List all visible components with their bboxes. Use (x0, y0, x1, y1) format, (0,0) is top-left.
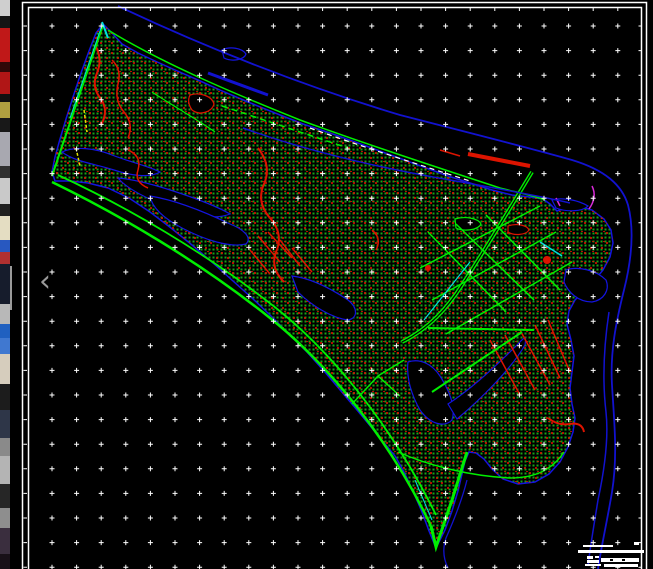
thumbnail[interactable] (0, 0, 10, 16)
title-block-bar (578, 550, 644, 553)
scrollbar-thumb[interactable] (10, 266, 12, 310)
red-blob (543, 256, 551, 264)
previous-image-arrow-icon[interactable]: ‹ (34, 268, 56, 298)
thumbnail[interactable] (0, 94, 10, 102)
thumbnail[interactable] (0, 166, 10, 178)
thumbnail[interactable] (0, 456, 10, 484)
thumbnail[interactable] (0, 410, 10, 438)
cad-drawing-canvas (0, 0, 653, 569)
thumbnail[interactable] (0, 72, 10, 94)
thumbnail[interactable] (0, 16, 10, 28)
thumbnail[interactable] (0, 324, 10, 338)
thumbnail[interactable] (0, 438, 10, 456)
thumbnail[interactable] (0, 484, 10, 508)
image-viewer: ‹ (0, 0, 653, 569)
thumbnail[interactable] (0, 240, 10, 252)
title-block-notch (610, 559, 613, 561)
thumbnail[interactable] (0, 118, 10, 132)
thumbnail[interactable] (0, 62, 10, 72)
thumbnail[interactable] (0, 528, 10, 554)
title-block-bar (585, 564, 601, 566)
thumbnail[interactable] (0, 28, 10, 62)
title-block-bar (634, 542, 639, 545)
red-contour (440, 150, 460, 156)
title-block-bar (587, 556, 593, 559)
thumbnail[interactable] (0, 252, 10, 264)
thumbnail[interactable] (0, 554, 10, 569)
red-blob (425, 265, 431, 271)
thumbnail[interactable] (0, 132, 10, 166)
title-block-bar (595, 556, 599, 558)
thumbnail[interactable] (0, 508, 10, 528)
title-block-bar (583, 545, 613, 547)
title-block-bar (604, 564, 638, 567)
thumbnail[interactable] (0, 338, 10, 354)
thumbnail[interactable] (0, 102, 10, 118)
thumbnail[interactable] (0, 304, 10, 324)
thumbnail[interactable] (0, 178, 10, 204)
lake (508, 225, 529, 235)
title-block-bar (587, 560, 599, 563)
thumbnail[interactable] (0, 204, 10, 216)
title-block-notch (622, 559, 625, 561)
red-contour (468, 154, 530, 166)
thumbnail[interactable] (0, 216, 10, 240)
thumbnail[interactable] (0, 384, 10, 410)
thumbnail-strip[interactable] (0, 0, 10, 569)
thumbnail[interactable] (0, 264, 10, 304)
title-block-bar (601, 558, 639, 562)
thumbnail[interactable] (0, 354, 10, 384)
